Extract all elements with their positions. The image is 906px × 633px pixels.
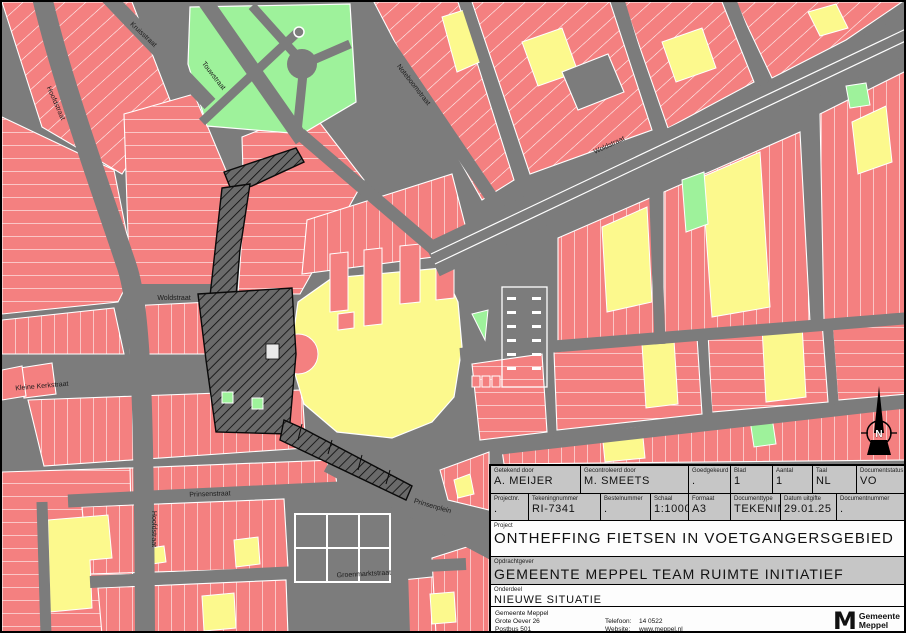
field-onderdeel: Onderdeel NIEUWE SITUATIE — [491, 585, 906, 607]
field-gecontroleerd-door: Gecontroleerd door M. SMEETS — [581, 466, 689, 493]
field-datum-uitgifte: Datum uitgifte 29.01.25 — [781, 494, 837, 520]
field-tekeningnummer: Tekeningnummer RI-7341 — [529, 494, 601, 520]
street-label: Woldstraat — [157, 295, 190, 302]
field-aantal: Aantal 1 — [773, 466, 813, 493]
field-schaal: Schaal 1:1000 — [651, 494, 689, 520]
contact-block: Telefoon:14 0522 Website:www.meppel.nl E… — [605, 610, 833, 631]
project-title: ONTHEFFING FIETSEN IN VOETGANGERSGEBIED — [494, 530, 903, 548]
fountain — [294, 27, 304, 37]
field-opdrachtgever: Opdrachtgever GEMEENTE MEPPEL TEAM RUIMT… — [491, 557, 906, 585]
address-block: Gemeente Meppel Grote Oever 26 Postbus 5… — [495, 610, 605, 631]
field-bestelnummer: Bestelnummer . — [601, 494, 651, 520]
field-projectnr: Projectnr. . — [491, 494, 529, 520]
field-getekend-door: Getekend door A. MEIJER — [491, 466, 581, 493]
logo-text: Gemeente Meppel — [859, 612, 900, 630]
north-label: N — [875, 429, 882, 440]
title-block-footer: Gemeente Meppel Grote Oever 26 Postbus 5… — [491, 607, 906, 633]
field-goedgekeurd: Goedgekeurd . — [689, 466, 731, 493]
title-block-row2: Projectnr. . Tekeningnummer RI-7341 Best… — [491, 494, 906, 521]
section-name: NIEUWE SITUATIE — [494, 594, 903, 606]
street-label: Prinsenstraat — [189, 490, 231, 498]
field-documentstatus: Documentstatus VO — [857, 466, 906, 493]
field-taal: Taal NL — [813, 466, 857, 493]
title-block-row1: Getekend door A. MEIJER Gecontroleerd do… — [491, 466, 906, 494]
logo-m-icon: M — [833, 610, 857, 632]
drawing-sheet: Kruisstraat Touwstraat Hoofdstraat Wolds… — [0, 0, 906, 633]
title-block: Getekend door A. MEIJER Gecontroleerd do… — [489, 464, 906, 631]
field-documentnummer: Documentnummer . — [837, 494, 906, 520]
gemeente-meppel-logo: M Gemeente Meppel — [833, 610, 902, 631]
field-documenttype: Documenttype TEKENING — [731, 494, 781, 520]
field-project: Project ONTHEFFING FIETSEN IN VOETGANGER… — [491, 521, 906, 557]
street-label: Hoofdstraat — [150, 511, 157, 547]
field-blad: Blad 1 — [731, 466, 773, 493]
field-formaat: Formaat A3 — [689, 494, 731, 520]
client-name: GEMEENTE MEPPEL TEAM RUIMTE INITIATIEF — [494, 566, 903, 582]
